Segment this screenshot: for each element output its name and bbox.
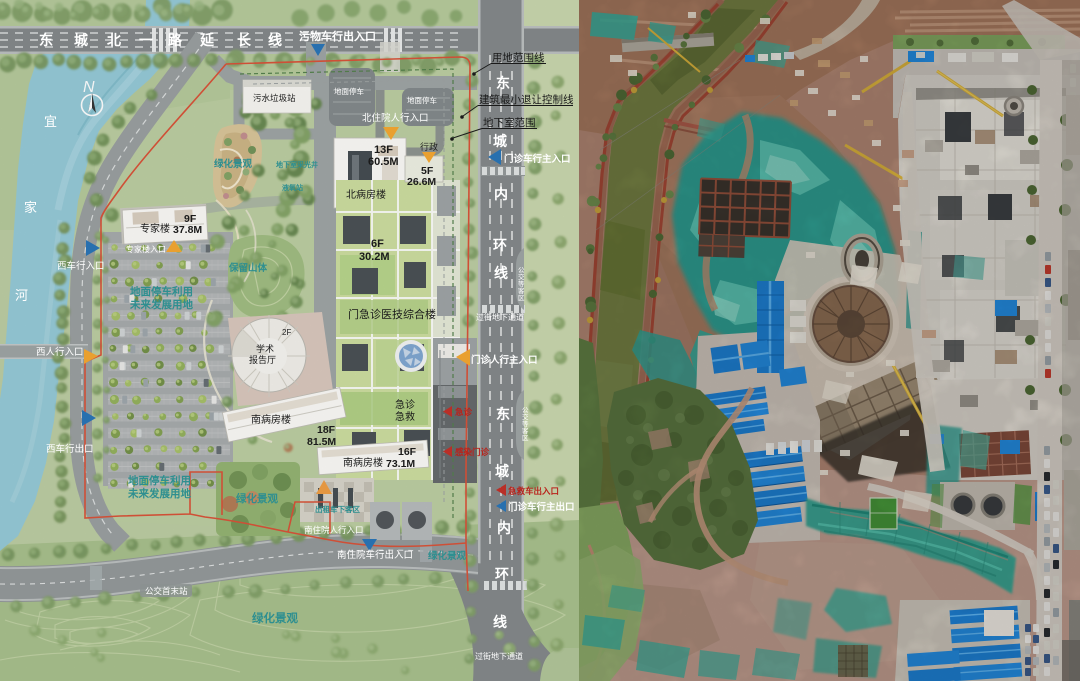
svg-text:公交首末站: 公交首末站	[145, 586, 188, 596]
svg-text:门诊车行主出口: 门诊车行主出口	[508, 501, 575, 513]
svg-text:等: 等	[518, 279, 525, 288]
svg-text:绿化景观: 绿化景观	[428, 550, 467, 562]
svg-text:公: 公	[518, 267, 525, 274]
svg-text:北住院人行入口: 北住院人行入口	[362, 112, 429, 124]
svg-text:内: 内	[494, 186, 508, 202]
svg-text:26.6M: 26.6M	[407, 176, 436, 188]
svg-text:73.1M: 73.1M	[386, 458, 415, 470]
svg-text:保留山体: 保留山体	[228, 262, 268, 274]
svg-text:西车行入口: 西车行入口	[57, 260, 105, 272]
svg-text:路: 路	[168, 32, 183, 48]
svg-text:线: 线	[493, 614, 507, 630]
svg-text:报告厅: 报告厅	[249, 354, 276, 365]
svg-text:西人行入口: 西人行入口	[36, 346, 84, 358]
svg-text:急救: 急救	[395, 410, 415, 423]
svg-text:城: 城	[493, 133, 507, 149]
svg-text:30.2M: 30.2M	[359, 251, 390, 263]
svg-text:交: 交	[518, 272, 525, 281]
svg-text:城: 城	[74, 32, 88, 48]
svg-text:专家楼: 专家楼	[140, 222, 170, 235]
svg-text:东: 东	[496, 406, 510, 422]
svg-text:北病房楼: 北病房楼	[346, 188, 386, 201]
svg-text:地面停车: 地面停车	[334, 86, 364, 96]
svg-text:18F: 18F	[317, 424, 336, 436]
svg-text:污水垃圾站: 污水垃圾站	[253, 93, 296, 103]
svg-text:13F: 13F	[374, 144, 393, 156]
svg-text:绿化景观: 绿化景观	[214, 158, 253, 170]
svg-text:区: 区	[518, 294, 525, 302]
svg-text:东: 东	[496, 75, 510, 91]
svg-text:门急诊医技综合楼: 门急诊医技综合楼	[348, 307, 436, 321]
svg-text:地面停车: 地面停车	[407, 95, 437, 105]
svg-text:急诊: 急诊	[395, 398, 415, 411]
svg-text:16F: 16F	[398, 446, 417, 458]
svg-text:未来发展用地: 未来发展用地	[129, 298, 193, 311]
svg-text:绿化景观: 绿化景观	[252, 611, 298, 625]
svg-text:西车行出口: 西车行出口	[46, 443, 94, 455]
svg-text:家: 家	[24, 200, 37, 215]
svg-text:出租车下客区: 出租车下客区	[315, 504, 360, 514]
svg-text:污物车行出入口: 污物车行出入口	[299, 29, 376, 43]
svg-text:感染门诊: 感染门诊	[455, 447, 490, 457]
svg-text:急诊: 急诊	[455, 407, 473, 417]
svg-text:延: 延	[199, 32, 215, 48]
svg-text:河: 河	[15, 288, 28, 303]
svg-text:公: 公	[522, 407, 529, 414]
svg-text:环: 环	[495, 566, 509, 582]
svg-text:过街地下通道: 过街地下通道	[475, 651, 523, 661]
svg-text:81.5M: 81.5M	[307, 436, 336, 448]
svg-text:急救车出入口: 急救车出入口	[508, 486, 559, 496]
svg-text:南病房楼: 南病房楼	[251, 413, 291, 426]
svg-text:门诊车行主入口: 门诊车行主入口	[504, 153, 571, 165]
svg-text:客: 客	[518, 286, 525, 295]
svg-text:行政: 行政	[420, 141, 438, 152]
svg-text:环: 环	[493, 237, 507, 253]
svg-text:南住院车行出入口: 南住院车行出入口	[337, 549, 413, 561]
svg-text:城: 城	[495, 463, 509, 479]
svg-text:学术: 学术	[256, 343, 274, 354]
svg-text:未来发展用地: 未来发展用地	[127, 487, 191, 500]
svg-text:客: 客	[522, 426, 529, 435]
svg-text:线: 线	[268, 32, 282, 48]
svg-text:内: 内	[497, 520, 511, 536]
svg-text:等: 等	[522, 419, 529, 428]
svg-text:地下室采光井: 地下室采光井	[276, 160, 318, 169]
svg-text:东: 东	[39, 32, 53, 48]
svg-text:长: 长	[237, 32, 252, 48]
svg-text:37.8M: 37.8M	[173, 224, 202, 236]
svg-text:2F: 2F	[282, 328, 291, 337]
svg-text:地面停车利用: 地面停车利用	[128, 474, 191, 487]
svg-text:建筑最小退让控制线: 建筑最小退让控制线	[479, 93, 574, 106]
svg-text:过街地下通道: 过街地下通道	[476, 312, 524, 322]
svg-text:线: 线	[494, 265, 508, 281]
svg-text:交: 交	[522, 412, 529, 421]
svg-text:用地范围线: 用地范围线	[492, 51, 545, 64]
svg-text:北: 北	[107, 32, 121, 48]
svg-text:6F: 6F	[371, 238, 384, 250]
svg-text:专家楼入口: 专家楼入口	[126, 244, 166, 254]
svg-text:绿化景观: 绿化景观	[236, 492, 278, 505]
svg-text:地下室范围: 地下室范围	[483, 116, 536, 129]
svg-text:60.5M: 60.5M	[368, 156, 399, 168]
svg-text:区: 区	[522, 434, 529, 442]
svg-text:南病房楼: 南病房楼	[343, 456, 383, 469]
svg-text:南住院人行入口: 南住院人行入口	[304, 525, 364, 535]
svg-text:一: 一	[139, 32, 153, 48]
svg-text:液氧站: 液氧站	[282, 183, 303, 192]
svg-text:宜: 宜	[44, 114, 57, 129]
svg-text:地面停车利用: 地面停车利用	[130, 285, 193, 298]
svg-text:门诊人行主入口: 门诊人行主入口	[471, 354, 538, 366]
